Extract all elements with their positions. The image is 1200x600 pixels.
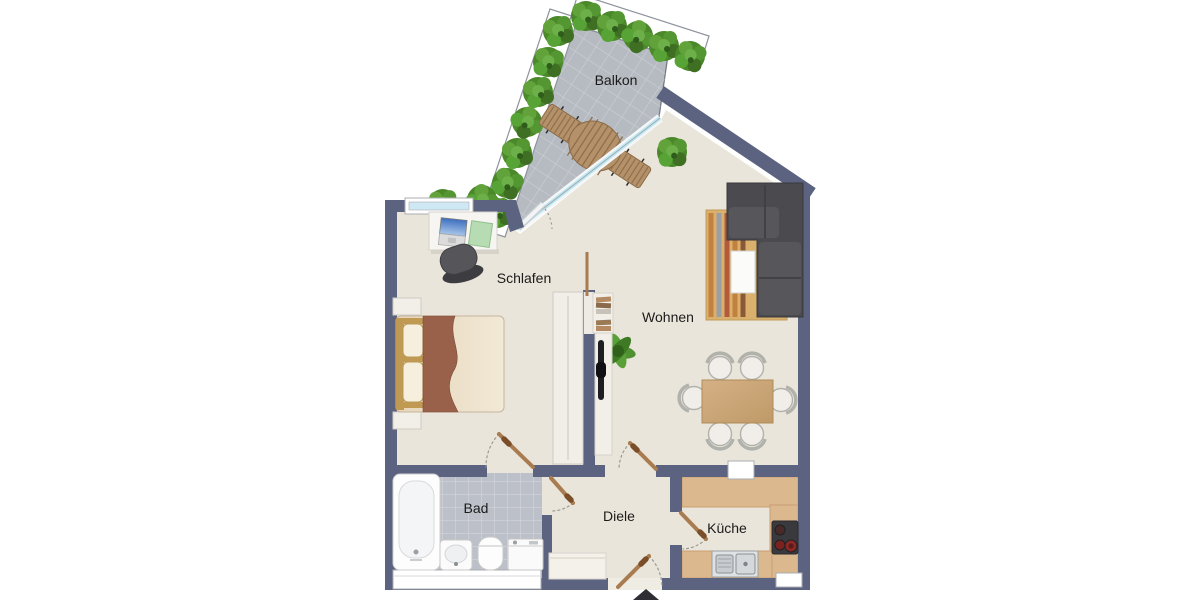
label-schlafen: Schlafen — [497, 270, 551, 286]
dining-chair — [739, 353, 765, 379]
pillow-frame — [403, 318, 425, 324]
dining-chair — [739, 423, 765, 449]
bookshelf — [593, 293, 613, 333]
washing-machine — [508, 539, 543, 570]
label-kueche: Küche — [707, 520, 747, 536]
pillow-frame — [403, 402, 425, 408]
tv-sideboard — [595, 333, 612, 455]
bathtub — [393, 474, 440, 570]
dining-chair — [707, 423, 733, 449]
tv — [596, 362, 606, 378]
toilet — [478, 537, 503, 570]
wall-bed-bottom-c — [656, 465, 672, 477]
wall-kitchen-left-b — [670, 545, 682, 578]
entrance-recess — [608, 578, 662, 590]
kitchen-window — [776, 573, 802, 587]
bathroom-window — [393, 570, 541, 589]
hallway-cabinet — [549, 553, 606, 579]
label-balkon: Balkon — [595, 72, 638, 88]
dining-chair — [707, 353, 733, 379]
label-diele: Diele — [603, 508, 635, 524]
laptop — [438, 218, 467, 248]
pillow — [403, 324, 423, 357]
floorplan-image: Balkon Schlafen Wohnen Bad Diele Küche — [0, 0, 1200, 600]
nightstand — [393, 298, 421, 315]
nightstand — [393, 412, 421, 429]
entrance-arrow — [633, 589, 659, 600]
coffee-table — [731, 251, 755, 293]
pillow — [403, 362, 423, 402]
kitchen-sink — [712, 551, 758, 577]
notepad — [468, 221, 492, 248]
label-wohnen: Wohnen — [642, 309, 694, 325]
label-bad: Bad — [464, 500, 489, 516]
kitchen-passthrough-window — [728, 461, 754, 479]
bathroom-sink — [440, 540, 472, 570]
dining-table — [702, 380, 773, 423]
wall-kitchen-left-a — [670, 477, 682, 512]
bed — [393, 298, 504, 429]
floorplan-svg: Balkon Schlafen Wohnen Bad Diele Küche — [0, 0, 1200, 600]
stove — [772, 521, 798, 554]
hallway — [549, 553, 606, 579]
